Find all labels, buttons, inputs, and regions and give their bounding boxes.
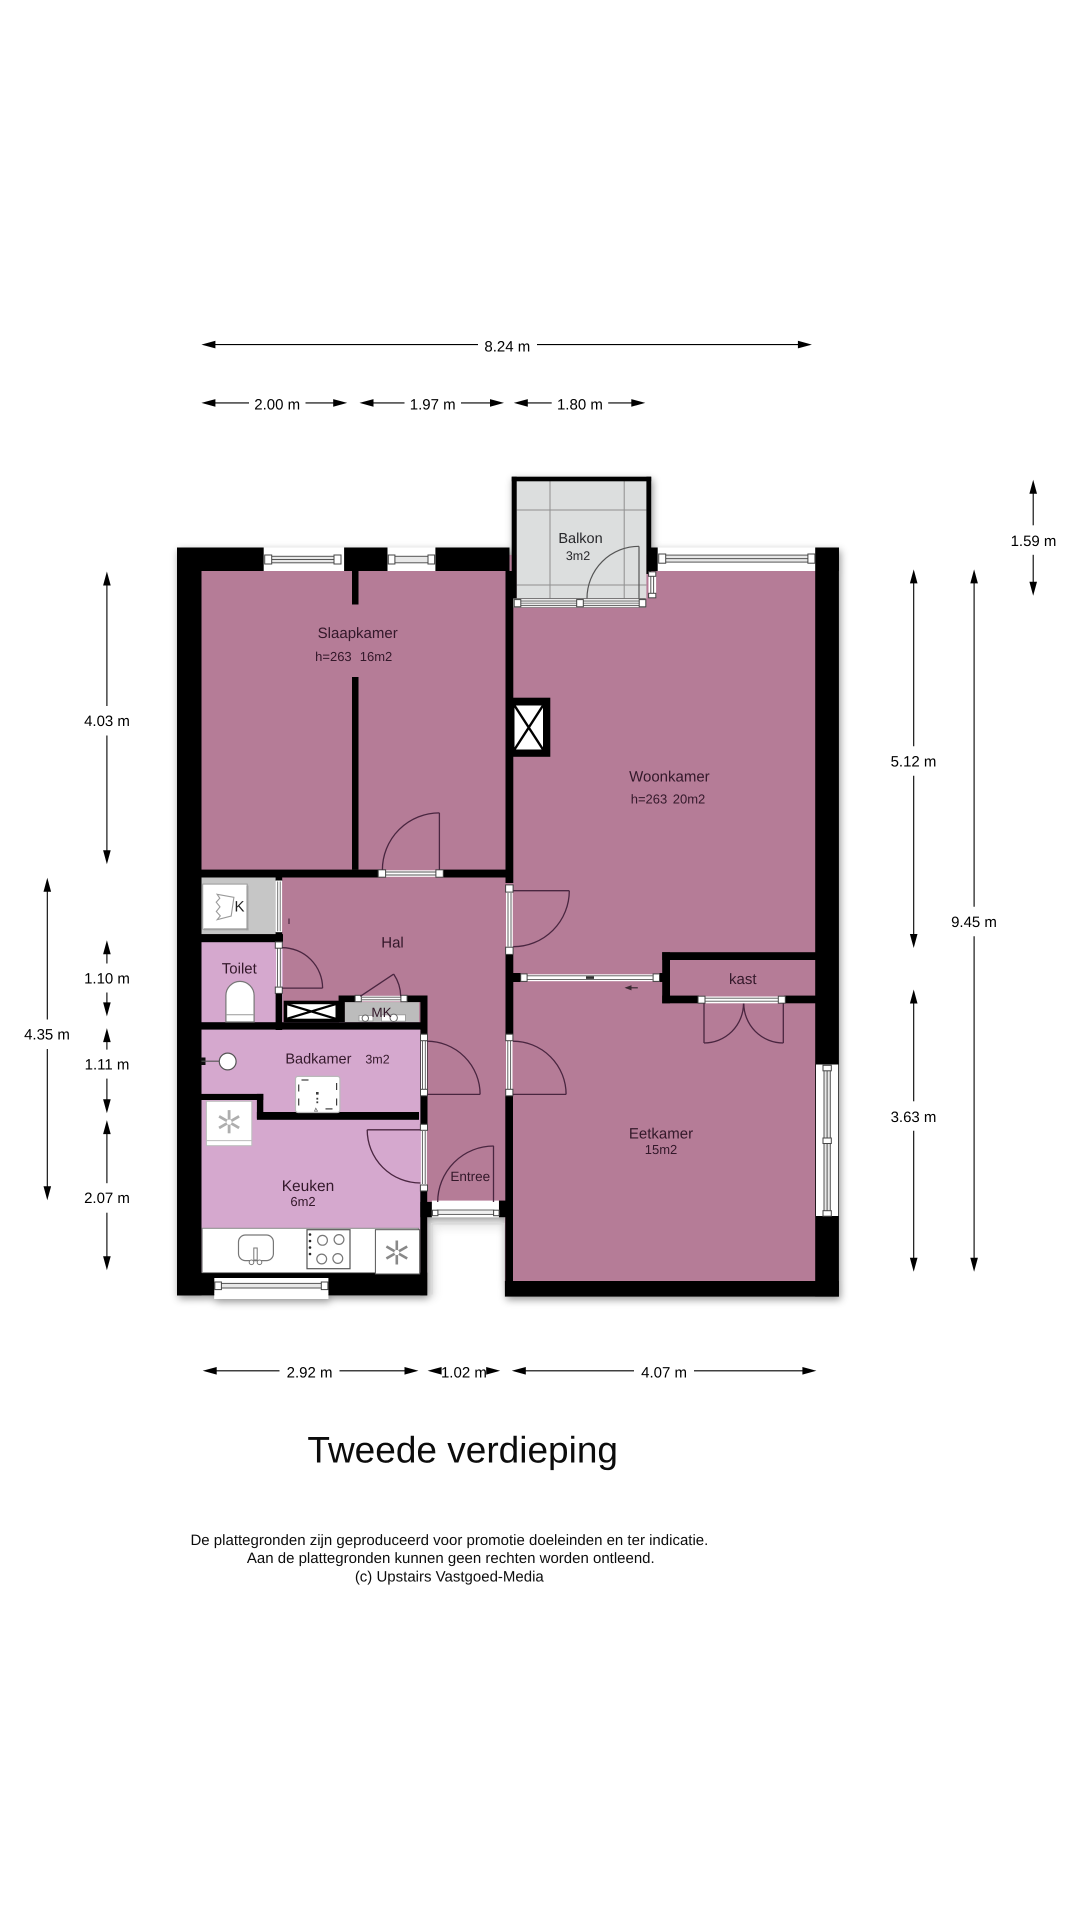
svg-text:1.02 m: 1.02 m — [441, 1364, 487, 1381]
svg-text:h=263: h=263 — [631, 791, 668, 806]
svg-text:2.00 m: 2.00 m — [254, 397, 300, 414]
svg-text:Entree: Entree — [450, 1169, 490, 1184]
svg-text:Hal: Hal — [381, 935, 404, 952]
svg-text:3m2: 3m2 — [566, 549, 590, 563]
svg-text:5.12 m: 5.12 m — [891, 753, 937, 770]
svg-text:1.10 m: 1.10 m — [84, 970, 130, 987]
svg-text:Woonkamer: Woonkamer — [629, 769, 710, 786]
svg-text:1.80 m: 1.80 m — [557, 397, 603, 414]
svg-text:Badkamer: Badkamer — [285, 1051, 351, 1067]
svg-text:Keuken: Keuken — [282, 1178, 335, 1195]
svg-text:15m2: 15m2 — [645, 1142, 678, 1157]
svg-text:4.07 m: 4.07 m — [641, 1364, 687, 1381]
svg-text:h=263: h=263 — [315, 649, 352, 664]
svg-text:9.45 m: 9.45 m — [951, 914, 997, 931]
svg-text:2.07 m: 2.07 m — [84, 1190, 130, 1207]
svg-text:1.97 m: 1.97 m — [410, 397, 456, 414]
svg-text:Aan de plattegronden kunnen ge: Aan de plattegronden kunnen geen rechten… — [247, 1550, 655, 1567]
svg-text:kast: kast — [729, 971, 757, 988]
svg-text:3m2: 3m2 — [365, 1052, 389, 1066]
svg-text:Tweede verdieping: Tweede verdieping — [307, 1430, 618, 1471]
svg-text:(c) Upstairs Vastgoed-Media: (c) Upstairs Vastgoed-Media — [355, 1568, 545, 1585]
svg-text:3.63 m: 3.63 m — [891, 1109, 937, 1126]
svg-text:4.03 m: 4.03 m — [84, 713, 130, 730]
svg-text:Balkon: Balkon — [558, 531, 602, 547]
svg-text:Eetkamer: Eetkamer — [629, 1125, 693, 1142]
svg-text:1.59 m: 1.59 m — [1011, 533, 1057, 550]
svg-text:K: K — [234, 899, 244, 916]
svg-text:1.11 m: 1.11 m — [85, 1056, 130, 1073]
svg-text:Toilet: Toilet — [222, 960, 258, 977]
svg-text:2.92 m: 2.92 m — [287, 1364, 333, 1381]
svg-text:20m2: 20m2 — [673, 791, 706, 806]
svg-text:4.35 m: 4.35 m — [24, 1026, 70, 1043]
svg-text:Slaapkamer: Slaapkamer — [318, 625, 398, 642]
svg-text:MK: MK — [371, 1005, 391, 1020]
svg-text:16m2: 16m2 — [360, 649, 393, 664]
svg-text:De plattegronden zijn geproduc: De plattegronden zijn geproduceerd voor … — [190, 1532, 708, 1549]
svg-text:6m2: 6m2 — [290, 1194, 315, 1209]
svg-text:8.24 m: 8.24 m — [484, 338, 530, 355]
